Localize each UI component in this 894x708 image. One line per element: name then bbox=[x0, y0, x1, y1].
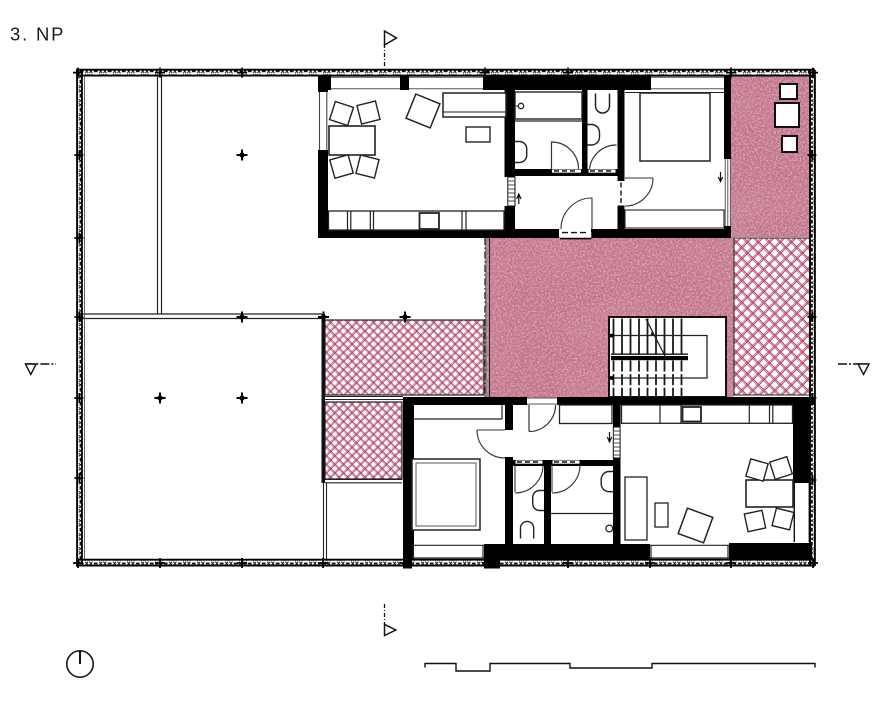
svg-text:3. NP: 3. NP bbox=[10, 24, 65, 45]
